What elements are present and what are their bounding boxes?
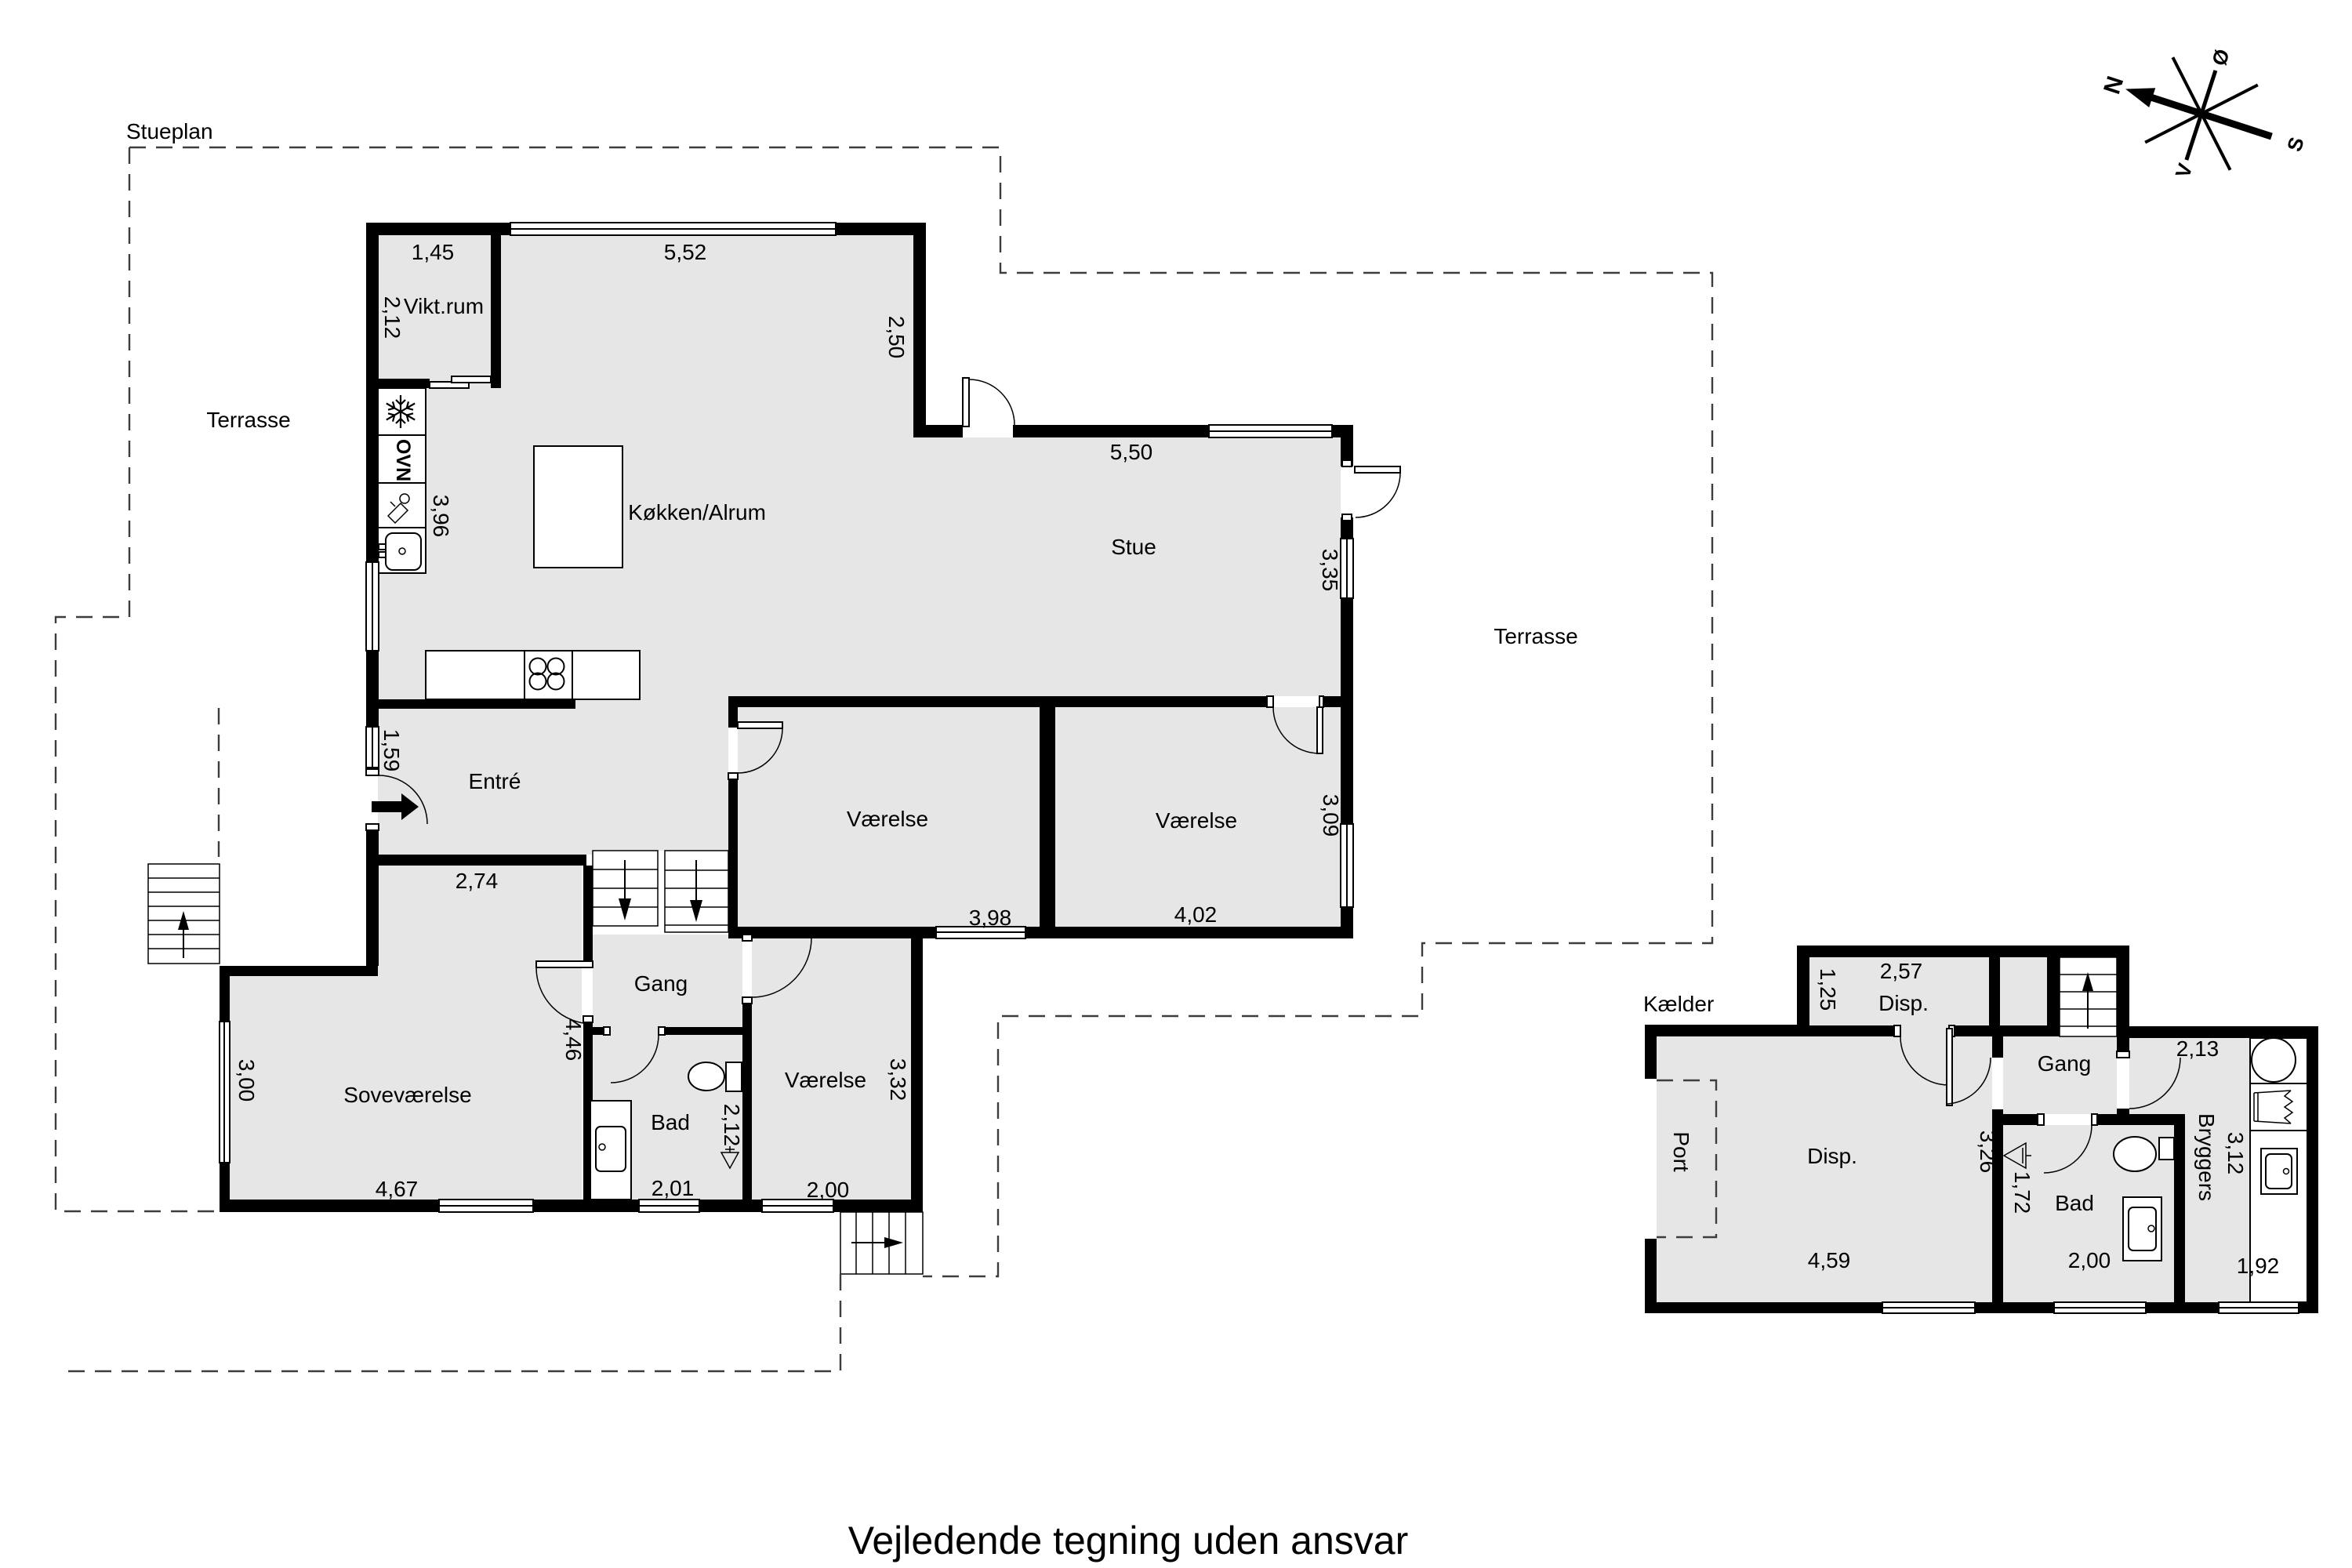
svg-text:2,74: 2,74 xyxy=(456,869,499,893)
svg-text:Kælder: Kælder xyxy=(1643,992,1714,1016)
svg-text:3,35: 3,35 xyxy=(1318,549,1342,592)
svg-text:2,13: 2,13 xyxy=(2176,1036,2220,1061)
svg-text:2,57: 2,57 xyxy=(1880,959,1923,983)
svg-text:Bad: Bad xyxy=(651,1110,690,1134)
svg-text:2,00: 2,00 xyxy=(2068,1248,2111,1272)
svg-text:2,00: 2,00 xyxy=(807,1178,850,1202)
svg-text:Bryggers: Bryggers xyxy=(2194,1113,2219,1201)
svg-text:1,59: 1,59 xyxy=(379,729,404,772)
svg-text:2,50: 2,50 xyxy=(884,316,909,359)
svg-text:2,12: 2,12 xyxy=(720,1104,744,1147)
svg-text:Værelse: Værelse xyxy=(847,807,928,831)
svg-text:Port: Port xyxy=(1669,1131,1693,1172)
svg-text:1,45: 1,45 xyxy=(412,240,455,264)
svg-text:Bad: Bad xyxy=(2055,1191,2094,1215)
svg-text:Stue: Stue xyxy=(1111,535,1156,559)
svg-text:Terrasse: Terrasse xyxy=(1494,624,1577,648)
svg-text:5,50: 5,50 xyxy=(1110,440,1153,464)
svg-text:Soveværelse: Soveværelse xyxy=(343,1083,471,1107)
svg-text:2,12: 2,12 xyxy=(380,296,405,339)
svg-text:4,59: 4,59 xyxy=(1808,1248,1851,1272)
svg-text:Vikt.rum: Vikt.rum xyxy=(404,294,484,318)
svg-text:Disp.: Disp. xyxy=(1878,991,1929,1015)
svg-text:4,02: 4,02 xyxy=(1174,902,1218,927)
svg-text:Værelse: Værelse xyxy=(785,1068,866,1092)
svg-text:Værelse: Værelse xyxy=(1156,808,1237,833)
svg-text:3,26: 3,26 xyxy=(1976,1131,2000,1174)
svg-text:3,98: 3,98 xyxy=(969,906,1012,930)
svg-text:OVN: OVN xyxy=(392,439,414,481)
svg-text:3,32: 3,32 xyxy=(886,1058,910,1102)
svg-text:4,46: 4,46 xyxy=(561,1018,586,1062)
svg-text:Entré: Entré xyxy=(469,769,521,793)
svg-text:Terrasse: Terrasse xyxy=(206,408,290,432)
svg-text:3,09: 3,09 xyxy=(1319,794,1343,837)
svg-text:5,52: 5,52 xyxy=(664,240,707,264)
svg-text:3,96: 3,96 xyxy=(429,495,453,538)
svg-text:Disp.: Disp. xyxy=(1807,1144,1857,1168)
svg-text:1,92: 1,92 xyxy=(2237,1254,2280,1278)
svg-text:Stueplan: Stueplan xyxy=(126,119,213,143)
svg-text:Gang: Gang xyxy=(634,971,688,996)
svg-text:4,67: 4,67 xyxy=(376,1177,419,1201)
svg-text:Gang: Gang xyxy=(2038,1051,2092,1076)
svg-text:Køkken/Alrum: Køkken/Alrum xyxy=(628,500,766,524)
svg-text:1,25: 1,25 xyxy=(1816,968,1840,1011)
svg-text:1,72: 1,72 xyxy=(2010,1171,2034,1214)
svg-text:Vejledende tegning uden ansvar: Vejledende tegning uden ansvar xyxy=(848,1519,1408,1563)
svg-text:3,12: 3,12 xyxy=(2223,1132,2248,1175)
svg-text:2,01: 2,01 xyxy=(652,1176,695,1200)
svg-text:3,00: 3,00 xyxy=(234,1059,259,1102)
